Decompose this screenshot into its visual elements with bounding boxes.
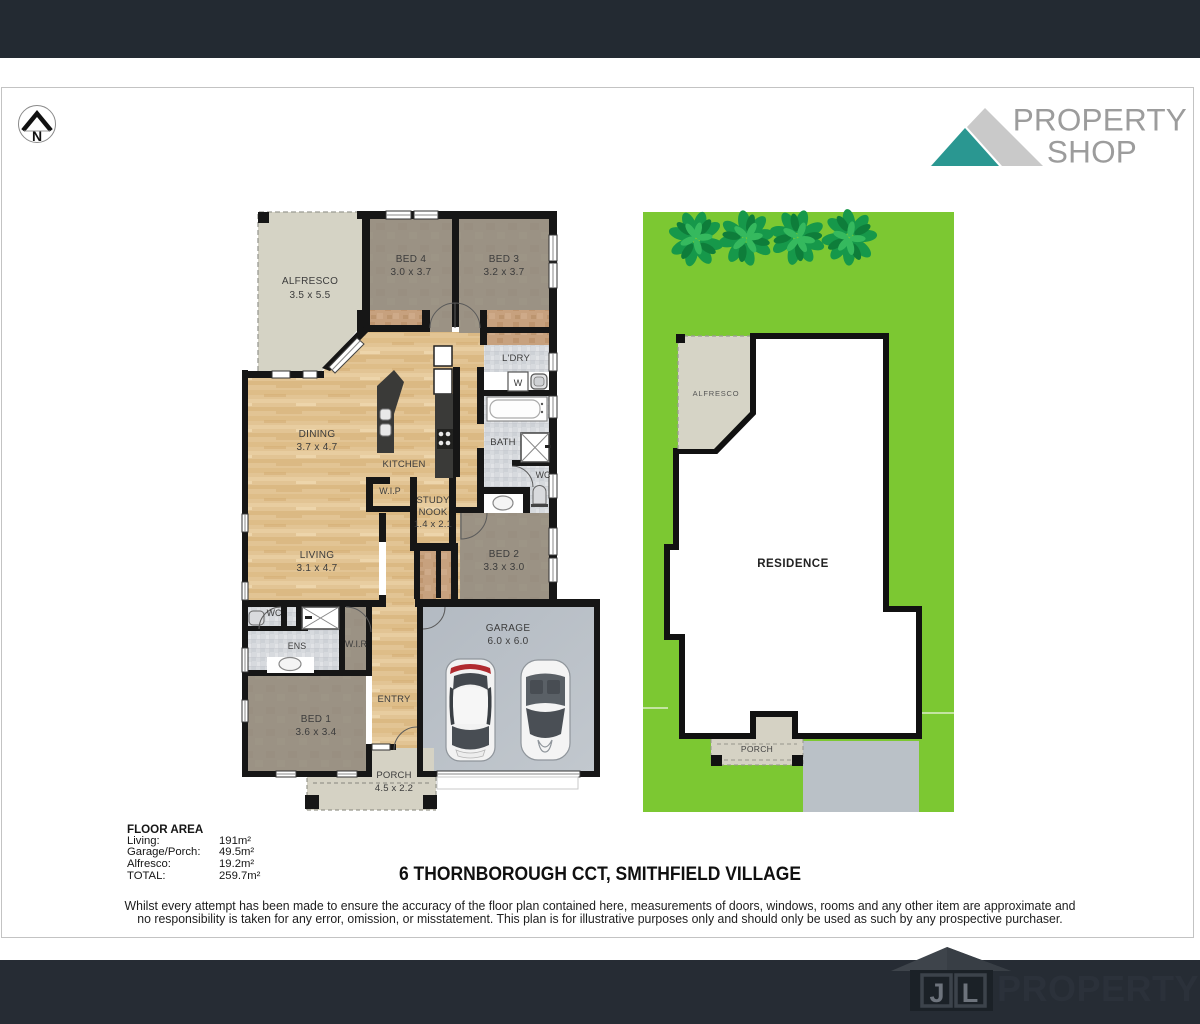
- svg-text:PORCH: PORCH: [741, 744, 773, 754]
- svg-text:3.0 x 3.7: 3.0 x 3.7: [390, 267, 431, 278]
- svg-text:WC: WC: [267, 608, 282, 618]
- svg-text:GARAGE: GARAGE: [486, 623, 531, 634]
- svg-text:LIVING: LIVING: [300, 550, 335, 561]
- svg-text:BED 1: BED 1: [301, 714, 332, 725]
- svg-text:N: N: [32, 128, 42, 144]
- svg-text:L: L: [962, 978, 979, 1008]
- svg-text:PORCH: PORCH: [376, 770, 411, 781]
- svg-text:BATH: BATH: [490, 437, 515, 448]
- svg-text:PROPERTY: PROPERTY: [1013, 102, 1187, 138]
- svg-text:4.5 x 2.2: 4.5 x 2.2: [375, 783, 413, 794]
- svg-text:SHOP: SHOP: [1047, 134, 1137, 170]
- svg-text:ENS: ENS: [288, 641, 306, 651]
- svg-text:3.2 x 3.7: 3.2 x 3.7: [483, 267, 524, 278]
- svg-text:BED 2: BED 2: [489, 549, 520, 560]
- svg-text:BED 4: BED 4: [396, 254, 427, 265]
- svg-text:J: J: [929, 978, 944, 1008]
- svg-text:3.6 x 3.4: 3.6 x 3.4: [295, 727, 336, 738]
- svg-text:RESIDENCE: RESIDENCE: [757, 558, 829, 570]
- svg-text:KITCHEN: KITCHEN: [382, 459, 425, 470]
- svg-text:NOOK: NOOK: [419, 507, 448, 518]
- svg-text:3.7 x 4.7: 3.7 x 4.7: [296, 442, 337, 453]
- svg-text:STUDY: STUDY: [416, 495, 450, 506]
- svg-text:W.I.R: W.I.R: [345, 639, 367, 649]
- svg-text:L'DRY: L'DRY: [502, 353, 530, 364]
- svg-text:WC: WC: [536, 470, 551, 480]
- svg-text:DINING: DINING: [299, 429, 336, 440]
- svg-text:W.I.P: W.I.P: [379, 486, 401, 496]
- svg-text:3.3 x 3.0: 3.3 x 3.0: [483, 562, 524, 573]
- svg-text:PROPERTY: PROPERTY: [997, 968, 1199, 1009]
- svg-text:3.1 x 4.7: 3.1 x 4.7: [296, 563, 337, 574]
- svg-text:6.0 x 6.0: 6.0 x 6.0: [487, 636, 528, 647]
- svg-text:BED 3: BED 3: [489, 254, 520, 265]
- svg-text:W: W: [514, 378, 523, 388]
- svg-text:3.5 x 5.5: 3.5 x 5.5: [289, 290, 330, 301]
- svg-text:1.4 x 2.1: 1.4 x 2.1: [414, 519, 452, 530]
- svg-text:ENTRY: ENTRY: [377, 694, 410, 705]
- svg-text:ALFRESCO: ALFRESCO: [282, 276, 338, 287]
- svg-text:ALFRESCO: ALFRESCO: [693, 389, 740, 398]
